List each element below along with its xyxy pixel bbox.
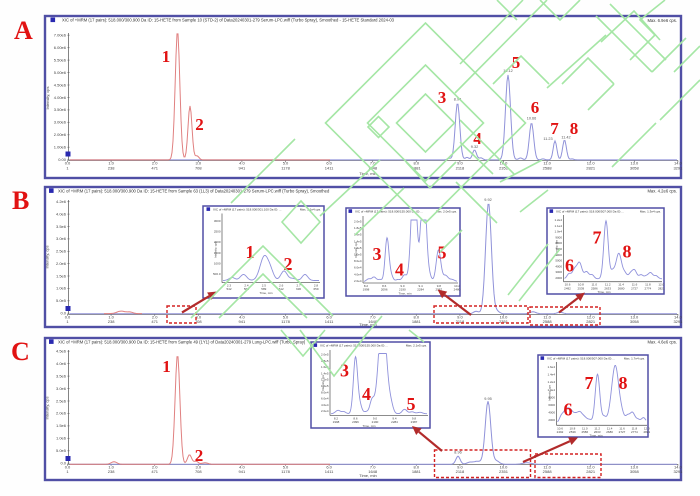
svg-text:7.00e6: 7.00e6 — [54, 33, 67, 38]
svg-text:2.5e6: 2.5e6 — [56, 249, 67, 254]
svg-text:5: 5 — [438, 243, 447, 263]
svg-text:Time, min: Time, min — [359, 473, 376, 478]
svg-text:708: 708 — [195, 469, 202, 474]
svg-text:XIC of +MRM (17 pairs): 518.00: XIC of +MRM (17 pairs): 518.000/300.900 … — [58, 339, 306, 344]
svg-text:1.5e6: 1.5e6 — [56, 273, 67, 278]
svg-text:2000: 2000 — [555, 276, 562, 280]
svg-text:2821: 2821 — [586, 469, 596, 474]
svg-text:6.0e4: 6.0e4 — [354, 266, 362, 270]
svg-text:2586: 2586 — [581, 430, 588, 434]
svg-text:9000: 9000 — [555, 235, 562, 239]
svg-text:1.0e4: 1.0e4 — [554, 230, 562, 234]
svg-text:1.6e4: 1.6e4 — [547, 365, 555, 369]
svg-text:7: 7 — [585, 373, 594, 393]
svg-text:1411: 1411 — [325, 165, 334, 170]
svg-text:Intensity, cps: Intensity, cps — [214, 241, 218, 258]
svg-text:Time, min: Time, min — [259, 291, 272, 295]
svg-text:3.0e6: 3.0e6 — [56, 236, 67, 241]
svg-text:2.5e6: 2.5e6 — [56, 398, 67, 403]
svg-text:1.5e6: 1.5e6 — [56, 423, 67, 428]
svg-text:2588: 2588 — [543, 469, 553, 474]
svg-text:659: 659 — [313, 287, 318, 291]
svg-text:Intensity, cps: Intensity, cps — [45, 86, 50, 109]
svg-text:2096: 2096 — [352, 420, 359, 424]
svg-text:471: 471 — [151, 469, 158, 474]
svg-text:Intensity, cps: Intensity, cps — [321, 374, 325, 391]
svg-text:9.95: 9.95 — [484, 397, 491, 401]
svg-text:2: 2 — [195, 446, 204, 465]
svg-text:2.0e4: 2.0e4 — [321, 409, 329, 413]
svg-text:1.0e6: 1.0e6 — [56, 436, 67, 441]
svg-text:6.00e6: 6.00e6 — [54, 45, 67, 50]
svg-text:5000: 5000 — [555, 259, 562, 263]
svg-text:2774: 2774 — [645, 286, 652, 290]
svg-text:2.0e5: 2.0e5 — [321, 353, 329, 357]
svg-text:941: 941 — [239, 469, 246, 474]
svg-text:1411: 1411 — [325, 319, 334, 324]
svg-text:3: 3 — [438, 88, 447, 107]
svg-text:6: 6 — [564, 400, 573, 420]
svg-text:XIC of +MRM (17 pairs): 518.00: XIC of +MRM (17 pairs): 518.000/300.900 … — [58, 188, 330, 193]
svg-text:3291: 3291 — [673, 469, 683, 474]
svg-text:2: 2 — [195, 115, 204, 134]
svg-text:5: 5 — [407, 394, 416, 414]
svg-text:2000: 2000 — [548, 418, 555, 422]
svg-text:1178: 1178 — [281, 165, 290, 170]
svg-text:XIC of +MRM (17 pairs): 518.00: XIC of +MRM (17 pairs): 518.000/507.000 … — [556, 210, 624, 214]
svg-text:3291: 3291 — [673, 319, 683, 324]
svg-text:2.00e6: 2.00e6 — [54, 132, 67, 137]
svg-text:542: 542 — [226, 287, 231, 291]
svg-text:4.5e6: 4.5e6 — [56, 349, 67, 354]
svg-text:2727: 2727 — [619, 430, 626, 434]
svg-text:Time, min: Time, min — [589, 434, 602, 438]
svg-text:3.00e6: 3.00e6 — [54, 120, 67, 125]
svg-text:4000: 4000 — [555, 264, 562, 268]
svg-text:9.92: 9.92 — [484, 198, 491, 202]
svg-text:8: 8 — [623, 242, 632, 262]
svg-text:2500: 2500 — [214, 230, 221, 234]
svg-text:4.00e6: 4.00e6 — [54, 95, 67, 100]
svg-text:2680: 2680 — [606, 430, 613, 434]
svg-text:Intensity, cps: Intensity, cps — [354, 241, 358, 258]
svg-text:Max. 1.3e4 cps.: Max. 1.3e4 cps. — [640, 210, 661, 214]
svg-text:B: B — [12, 186, 29, 215]
svg-text:2492: 2492 — [564, 286, 571, 290]
svg-text:636: 636 — [296, 287, 301, 291]
svg-text:708: 708 — [195, 165, 202, 170]
svg-text:8.0e4: 8.0e4 — [354, 259, 362, 263]
svg-text:2.0e6: 2.0e6 — [56, 411, 67, 416]
svg-text:238: 238 — [108, 469, 115, 474]
svg-text:2118: 2118 — [456, 469, 465, 474]
svg-text:4.0e4: 4.0e4 — [321, 403, 329, 407]
svg-text:Max. 4.2e6 cps.: Max. 4.2e6 cps. — [647, 189, 677, 194]
svg-text:1.4e5: 1.4e5 — [321, 371, 329, 375]
svg-text:5.0e5: 5.0e5 — [56, 448, 67, 453]
svg-text:2821: 2821 — [658, 286, 665, 290]
svg-text:1.1e4: 1.1e4 — [554, 224, 562, 228]
svg-text:5.0e5: 5.0e5 — [56, 298, 67, 303]
svg-text:A: A — [14, 16, 33, 45]
svg-text:1: 1 — [162, 47, 171, 66]
svg-text:3291: 3291 — [673, 165, 683, 170]
svg-text:Intensity, cps: Intensity, cps — [45, 396, 50, 419]
svg-text:4.50e6: 4.50e6 — [54, 82, 67, 87]
svg-text:3.5e6: 3.5e6 — [56, 224, 67, 229]
svg-text:7: 7 — [593, 228, 602, 248]
svg-text:3058: 3058 — [630, 165, 640, 170]
svg-text:1.0e6: 1.0e6 — [56, 286, 67, 291]
svg-text:4: 4 — [395, 260, 404, 280]
svg-text:Time, min: Time, min — [597, 290, 610, 294]
svg-text:C: C — [11, 337, 30, 366]
svg-text:1.2e4: 1.2e4 — [554, 218, 562, 222]
svg-text:471: 471 — [151, 319, 158, 324]
svg-text:2.0e4: 2.0e4 — [354, 279, 362, 283]
svg-text:2351: 2351 — [499, 469, 509, 474]
svg-text:238: 238 — [108, 165, 115, 170]
svg-text:1881: 1881 — [412, 469, 422, 474]
svg-text:8.96: 8.96 — [454, 451, 461, 455]
svg-text:Max. 2.1e5 cps.: Max. 2.1e5 cps. — [406, 344, 427, 348]
svg-text:4000: 4000 — [548, 411, 555, 415]
svg-text:Max. 6.9e6 cps.: Max. 6.9e6 cps. — [647, 18, 677, 23]
svg-text:Max. 1.7e4 cps.: Max. 1.7e4 cps. — [624, 357, 645, 361]
svg-text:238: 238 — [108, 319, 115, 324]
svg-text:1411: 1411 — [325, 469, 334, 474]
svg-text:2821: 2821 — [586, 165, 596, 170]
svg-text:5.00e6: 5.00e6 — [54, 70, 67, 75]
svg-text:4.0e6: 4.0e6 — [56, 361, 67, 366]
svg-text:2774: 2774 — [631, 430, 638, 434]
svg-text:6000: 6000 — [548, 403, 555, 407]
svg-text:2.0e6: 2.0e6 — [56, 261, 67, 266]
svg-text:Time, min: Time, min — [362, 424, 375, 428]
svg-text:3: 3 — [373, 244, 382, 264]
svg-text:6: 6 — [531, 98, 540, 117]
svg-text:941: 941 — [239, 165, 246, 170]
svg-text:Intensity, cps: Intensity, cps — [548, 384, 552, 401]
svg-text:2680: 2680 — [618, 286, 625, 290]
svg-text:6.0e4: 6.0e4 — [321, 397, 329, 401]
svg-text:4.0e6: 4.0e6 — [56, 211, 67, 216]
svg-text:500.0: 500.0 — [213, 272, 221, 276]
svg-text:8: 8 — [619, 373, 628, 393]
svg-text:2387: 2387 — [411, 420, 418, 424]
svg-text:941: 941 — [239, 319, 246, 324]
svg-text:8: 8 — [570, 119, 579, 138]
svg-text:3000: 3000 — [214, 219, 221, 223]
svg-text:1881: 1881 — [412, 319, 422, 324]
svg-text:1178: 1178 — [281, 469, 290, 474]
svg-text:1998: 1998 — [363, 288, 370, 292]
svg-text:XIC of +MRM (17 pairs): 518.00: XIC of +MRM (17 pairs): 518.000/507.000 … — [547, 357, 615, 361]
svg-text:2480: 2480 — [454, 288, 461, 292]
svg-text:1178: 1178 — [281, 319, 290, 324]
svg-text:2821: 2821 — [586, 319, 596, 324]
svg-text:5.50e6: 5.50e6 — [54, 57, 67, 62]
svg-text:XIC of +MRM (17 pairs): 518.00: XIC of +MRM (17 pairs): 518.000/301.100 … — [213, 208, 282, 212]
svg-text:2.0e5: 2.0e5 — [354, 220, 362, 224]
svg-text:2588: 2588 — [543, 319, 553, 324]
svg-text:2727: 2727 — [631, 286, 638, 290]
svg-text:2284: 2284 — [417, 288, 424, 292]
svg-text:6: 6 — [565, 256, 574, 276]
svg-text:4.0e4: 4.0e4 — [354, 272, 362, 276]
svg-text:Intensity, cps: Intensity, cps — [45, 245, 50, 268]
svg-text:2118: 2118 — [456, 165, 465, 170]
svg-text:4.2e6: 4.2e6 — [56, 199, 67, 204]
svg-text:1000: 1000 — [214, 261, 221, 265]
svg-text:XIC of +MRM (17 pairs): 518.00: XIC of +MRM (17 pairs): 518.000/300.900 … — [62, 18, 395, 23]
svg-text:7: 7 — [550, 119, 559, 138]
svg-text:1: 1 — [162, 357, 171, 376]
svg-text:3058: 3058 — [630, 319, 640, 324]
svg-text:471: 471 — [151, 165, 158, 170]
svg-text:3000: 3000 — [555, 270, 562, 274]
svg-text:2539: 2539 — [569, 430, 576, 434]
svg-text:2492: 2492 — [557, 430, 564, 434]
svg-text:1.4e4: 1.4e4 — [547, 373, 555, 377]
svg-text:2588: 2588 — [543, 165, 553, 170]
svg-text:1.00e6: 1.00e6 — [54, 145, 67, 150]
svg-text:Max. 4.6e6 cps.: Max. 4.6e6 cps. — [647, 340, 677, 345]
svg-text:3058: 3058 — [630, 469, 640, 474]
svg-text:4: 4 — [362, 384, 371, 404]
svg-text:2284: 2284 — [391, 420, 398, 424]
svg-text:3.5e6: 3.5e6 — [56, 373, 67, 378]
svg-text:3.0e6: 3.0e6 — [56, 386, 67, 391]
svg-text:2096: 2096 — [381, 288, 388, 292]
svg-text:2821: 2821 — [643, 430, 650, 434]
svg-text:1.2e4: 1.2e4 — [547, 380, 555, 384]
svg-text:5: 5 — [512, 53, 521, 72]
svg-text:2539: 2539 — [578, 286, 585, 290]
svg-text:1998: 1998 — [333, 420, 340, 424]
svg-text:XIC of +MRM (17 pairs): 518.00: XIC of +MRM (17 pairs): 518.000/155.000 … — [320, 344, 388, 348]
svg-text:Time, min: Time, min — [398, 291, 411, 295]
svg-text:3.50e6: 3.50e6 — [54, 107, 67, 112]
svg-text:10.66: 10.66 — [527, 117, 537, 121]
